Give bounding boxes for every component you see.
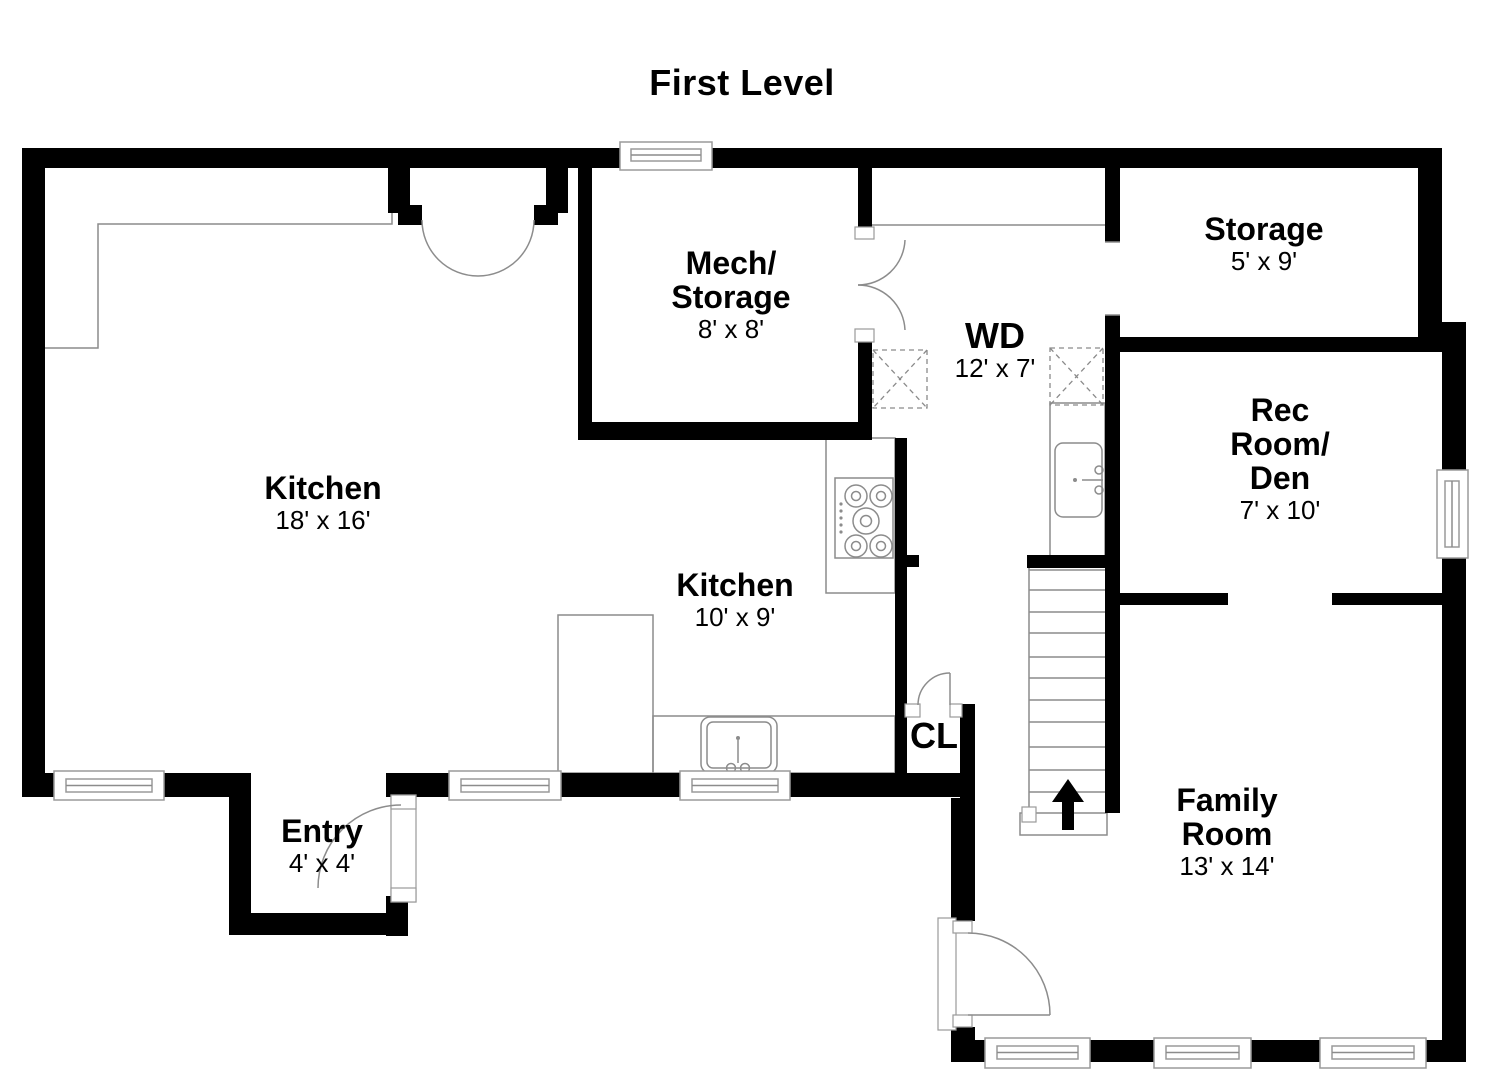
interior-walls: [388, 168, 1447, 1062]
room-label-storage: Storage 5' x 9': [1144, 212, 1384, 277]
window: [680, 771, 790, 800]
kitchen-double-door: [422, 220, 534, 276]
staircase: [1020, 568, 1107, 835]
stove-icon: [835, 478, 893, 558]
window: [985, 1038, 1090, 1068]
room-label-kitchen-main: Kitchen 18' x 16': [203, 471, 443, 536]
laundry-sink-icon: [1055, 443, 1103, 517]
window: [1154, 1038, 1251, 1068]
family-room-door: [938, 918, 1050, 1030]
stair-newel-post: [1022, 807, 1036, 822]
kitchen-counter: [43, 170, 392, 348]
room-label-family-room: Family Room 13' x 14': [1107, 783, 1347, 882]
kitchen-peninsula-counter: [558, 615, 653, 773]
closet-door: [905, 673, 962, 717]
window: [449, 771, 561, 800]
window: [1320, 1038, 1426, 1068]
window: [620, 142, 712, 170]
room-label-mech-storage: Mech/ Storage 8' x 8': [611, 246, 851, 345]
room-label-entry: Entry 4' x 4': [202, 814, 442, 879]
room-label-rec-room: Rec Room/ Den 7' x 10': [1160, 393, 1400, 526]
kitchen-sink-icon: [701, 717, 777, 773]
room-label-kitchen-small: Kitchen 10' x 9': [615, 568, 855, 633]
room-label-laundry: WD 12' x 7': [875, 319, 1115, 384]
plan-title: First Level: [542, 62, 942, 104]
room-label-closet: CL: [814, 719, 1054, 753]
floor-plan-drawing: [0, 0, 1485, 1080]
window: [1437, 470, 1468, 558]
storage-opening: [1105, 242, 1120, 315]
floor-plan: First Level Kitchen 18' x 16' Mech/ Stor…: [0, 0, 1485, 1080]
window: [54, 771, 164, 800]
